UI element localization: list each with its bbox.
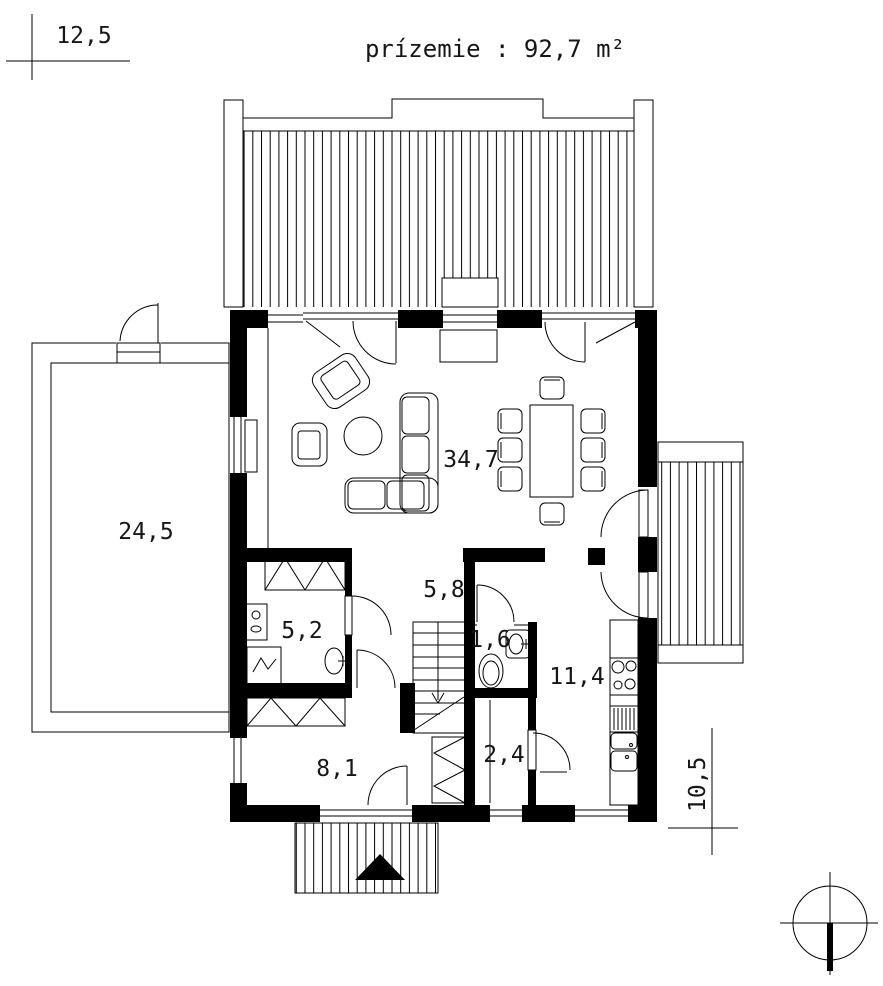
garage-door-swing (120, 305, 158, 341)
label-kitchen-area: 11,4 (549, 664, 604, 690)
label-wc-area: 1,6 (469, 627, 511, 653)
sofa (345, 393, 438, 513)
window-left-living (234, 417, 241, 473)
label-bathroom-area: 5,2 (281, 618, 323, 644)
label-living-area: 34,7 (443, 447, 498, 473)
entrance-door (368, 766, 407, 805)
dining-chair (581, 438, 605, 462)
pillar-left (224, 100, 243, 307)
radiator (245, 420, 257, 472)
pillar-right (634, 100, 653, 307)
bathroom-door (345, 596, 391, 635)
window-left-bedroom (234, 738, 241, 783)
terrace-bottom (295, 823, 438, 893)
label-garage-area: 24,5 (118, 519, 173, 545)
terrace-right-hatch (658, 462, 743, 645)
living-room-furniture (245, 328, 605, 548)
dining-chair (498, 438, 522, 462)
toilet (479, 654, 503, 688)
kitchen-sink (611, 733, 637, 771)
exterior-walls (230, 310, 657, 822)
dimension-top-width: 12,5 (6, 14, 130, 80)
north-compass (780, 872, 878, 975)
terrace-door-right-upper (601, 490, 648, 537)
dining-chair (498, 409, 522, 433)
armchair-rotated (309, 350, 374, 413)
doormat (442, 278, 498, 307)
bathroom-wardrobe (265, 558, 345, 590)
sideboard (440, 330, 497, 362)
windows (234, 315, 628, 816)
window-top-center (443, 315, 497, 322)
french-door-top (303, 313, 398, 364)
kitchen-counter (610, 620, 638, 805)
wc-door (477, 585, 514, 622)
window-top-left (268, 315, 303, 322)
garage-room (32, 303, 229, 732)
dimension-side-label: 10,5 (685, 757, 711, 812)
terrace-door-right-lower (601, 572, 648, 618)
dimension-top-label: 12,5 (56, 23, 111, 49)
floor-plan-drawing: 12,5 prízemie : 92,7 m² (0, 0, 883, 986)
stairs (413, 622, 465, 733)
terrace-right (658, 442, 743, 663)
terrace-top (224, 99, 653, 307)
pantry-kitchen-door (528, 730, 570, 772)
terrace-bottom-hatch (295, 823, 438, 893)
dining-set (498, 377, 605, 525)
terrace-top-hatch (243, 131, 634, 307)
entrance-sill (320, 810, 412, 816)
washing-machine (247, 647, 281, 684)
bedroom-wardrobe (247, 698, 345, 726)
label-hall-area: 5,8 (423, 577, 465, 603)
dining-table (530, 405, 573, 497)
label-bedroom-area: 8,1 (316, 756, 358, 782)
stove (610, 658, 638, 695)
window-bottom-kitchen (575, 810, 628, 816)
dish-rack (610, 706, 638, 732)
coffee-table (344, 417, 382, 455)
dining-chair (581, 409, 605, 433)
label-pantry-area: 2,4 (483, 742, 525, 768)
compass-needle (827, 923, 833, 971)
dimension-side-depth: 10,5 (668, 728, 738, 855)
armchair (292, 423, 327, 466)
dining-chair (581, 467, 605, 491)
window-bottom-pantry (490, 810, 522, 816)
floor-plan-page: 12,5 prízemie : 92,7 m² (0, 0, 883, 986)
bathroom-sink (325, 648, 348, 674)
boiler (246, 604, 267, 640)
nook-wardrobe (432, 737, 465, 803)
page-title: prízemie : 92,7 m² (365, 35, 625, 63)
terrace-door-top-right (542, 313, 635, 362)
dining-chair (498, 467, 522, 491)
bedroom-door (357, 650, 395, 688)
